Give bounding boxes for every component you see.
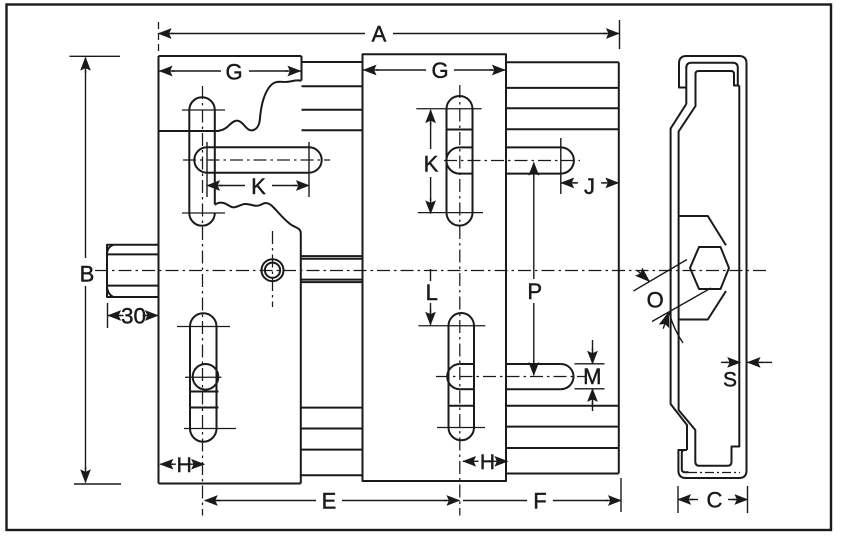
svg-text:H: H (480, 451, 495, 474)
svg-text:F: F (533, 489, 546, 514)
svg-text:L: L (426, 280, 438, 305)
svg-text:C: C (707, 488, 723, 513)
svg-text:30: 30 (121, 304, 146, 329)
svg-text:E: E (322, 489, 337, 514)
svg-text:G: G (431, 58, 448, 83)
svg-text:M: M (583, 364, 601, 389)
svg-text:O: O (647, 288, 664, 313)
svg-text:A: A (372, 22, 387, 47)
svg-text:J: J (584, 174, 595, 199)
svg-text:B: B (80, 262, 95, 287)
svg-text:K: K (251, 174, 266, 199)
svg-text:K: K (424, 152, 439, 177)
svg-text:S: S (723, 369, 737, 392)
svg-text:H: H (177, 454, 192, 477)
svg-text:P: P (527, 279, 542, 304)
svg-text:G: G (225, 60, 242, 85)
